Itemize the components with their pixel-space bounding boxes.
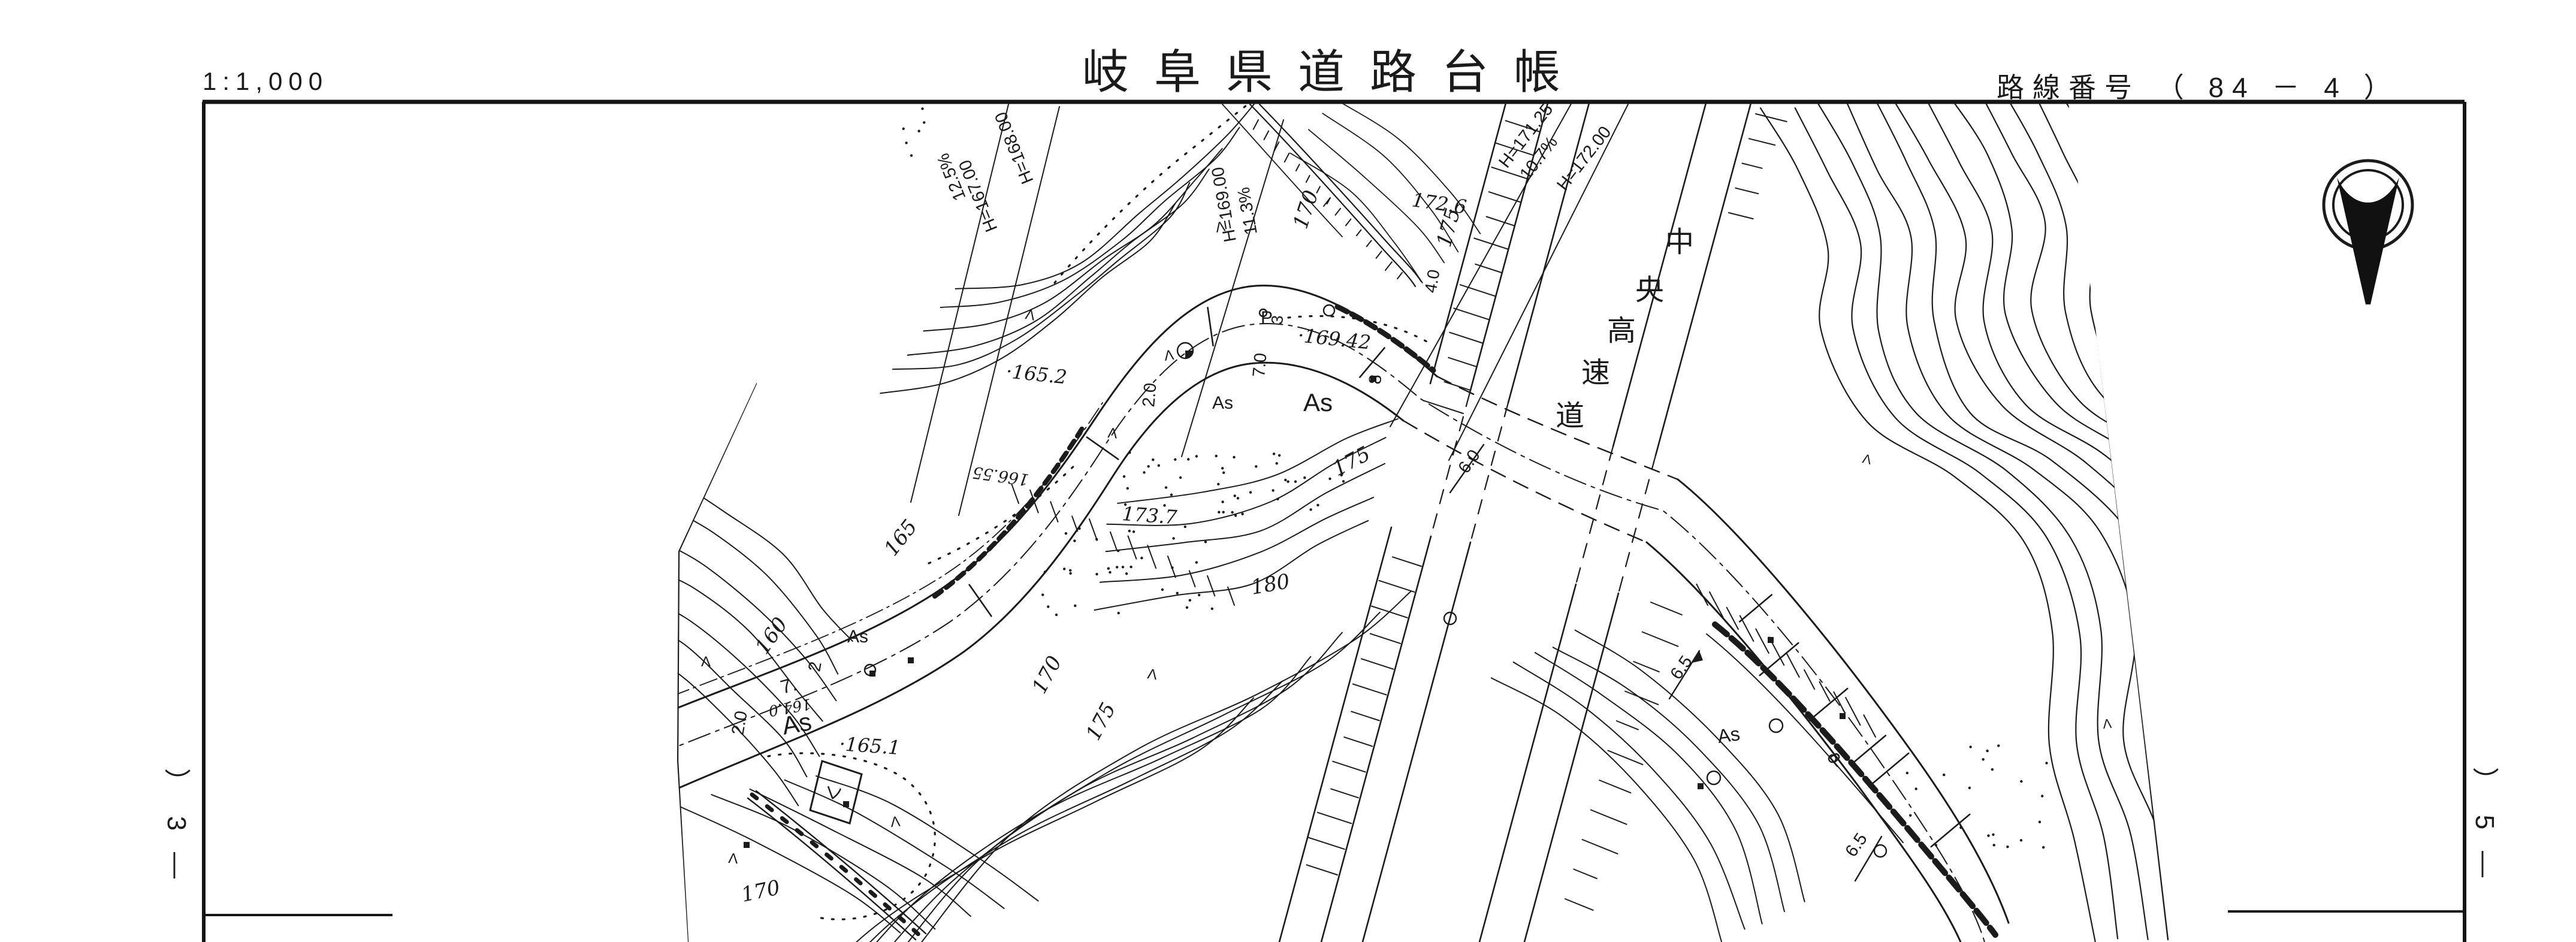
map-label: 高 bbox=[1607, 315, 1636, 347]
map-label: 173.7 bbox=[1121, 502, 1178, 529]
map-label: 7. bbox=[778, 673, 799, 698]
map-label: 道 bbox=[1556, 400, 1584, 432]
map-label: 2.0 bbox=[728, 709, 751, 736]
map-label: 170 bbox=[1028, 652, 1067, 698]
road-hidden-under-expressway bbox=[1403, 376, 1678, 542]
north-arrow-icon bbox=[2324, 161, 2412, 304]
map-label: As bbox=[847, 627, 868, 647]
map-label: P bbox=[1261, 308, 1273, 328]
map-label: 175 bbox=[1328, 442, 1374, 481]
map-label: 166.55 bbox=[971, 463, 1030, 489]
map-label: Λ bbox=[890, 813, 901, 831]
map-label: As bbox=[780, 707, 813, 740]
map-label: Λ bbox=[1146, 666, 1158, 683]
admin-boundary-line bbox=[644, 403, 1103, 707]
map-label: As bbox=[1212, 393, 1233, 413]
map-label: 8 bbox=[1366, 374, 1385, 385]
map-label: 央 bbox=[1635, 274, 1664, 306]
map-label: 7.0 bbox=[1249, 352, 1270, 378]
map-label: 2.0 bbox=[1139, 382, 1160, 408]
map-label: 165 bbox=[880, 515, 922, 561]
road-edge-north-se bbox=[1678, 479, 2009, 923]
road-edge-south-se bbox=[1647, 542, 1961, 942]
map-label: Λ bbox=[728, 850, 739, 867]
map-label: 4.0 bbox=[1421, 268, 1443, 294]
road-register-sheet: 1:1,000 岐阜県道路台帳 路線番号 （ 84 － 4 ） ）3— ）5— bbox=[0, 0, 2576, 942]
map-label: ·165.1 bbox=[838, 732, 901, 759]
map-label: 2 bbox=[805, 660, 825, 673]
map-canvas: 中央高速道12.5%H=167.00H=168.00H=169.0011.3%H… bbox=[0, 0, 2576, 942]
map-label: 中 bbox=[1665, 227, 1694, 258]
map-label: Λ bbox=[2102, 716, 2113, 732]
map-label: 6.5 bbox=[1842, 830, 1871, 861]
map-label: Λ bbox=[701, 654, 711, 670]
map-label: 170 bbox=[739, 875, 783, 907]
map-label: H=172.00 bbox=[1553, 123, 1615, 194]
map-label: 速 bbox=[1581, 357, 1610, 389]
map-label: レ bbox=[823, 780, 846, 804]
map-label: ·165.2 bbox=[1005, 360, 1068, 388]
road-edge-south bbox=[665, 363, 1403, 794]
map-label: 180 bbox=[1249, 569, 1292, 600]
map-label: Λ bbox=[1861, 451, 1873, 467]
map-label: 6.5 bbox=[1667, 653, 1696, 683]
map-label: ·169.42 bbox=[1297, 324, 1372, 354]
map-label: Λ bbox=[1163, 347, 1175, 364]
map-label: As bbox=[1716, 723, 1741, 747]
map-label: 175 bbox=[1082, 699, 1121, 744]
map-label: Λ bbox=[1107, 425, 1118, 442]
map-label: As bbox=[1303, 388, 1333, 416]
dotted-boundaries bbox=[768, 105, 1432, 919]
map-label: 170 bbox=[1289, 188, 1324, 232]
